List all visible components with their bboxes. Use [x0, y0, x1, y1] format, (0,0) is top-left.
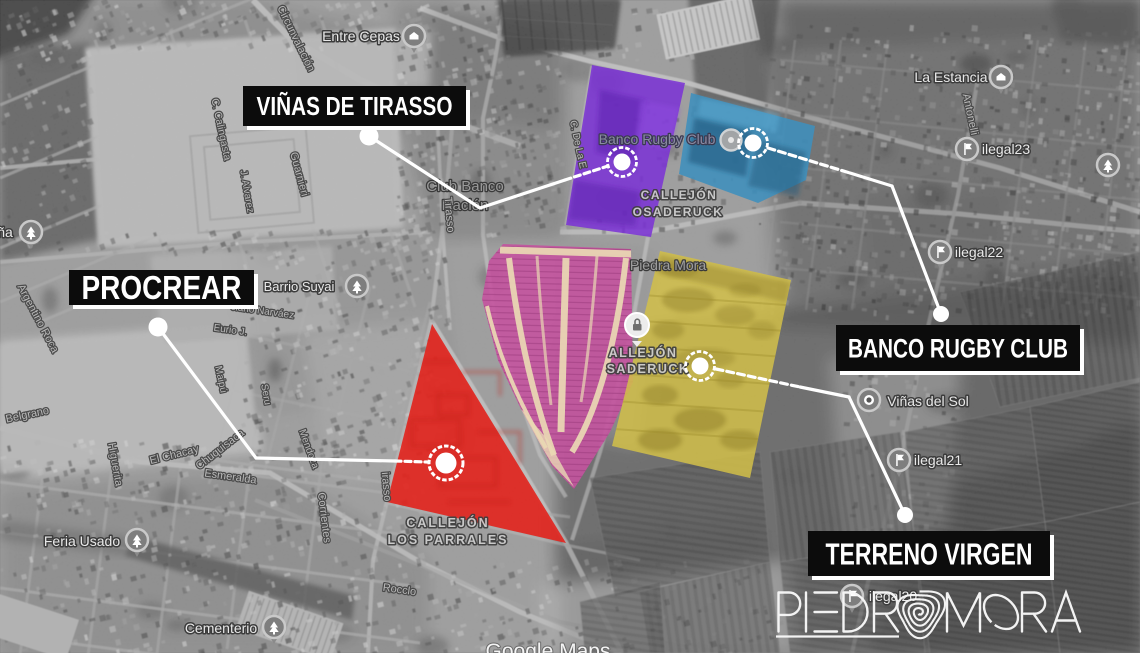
svg-text:OSADERUCK: OSADERUCK: [633, 205, 724, 219]
svg-text:PROCREAR: PROCREAR: [82, 269, 242, 306]
svg-text:CALLEJÓN: CALLEJÓN: [406, 515, 489, 530]
svg-text:ña: ña: [0, 224, 13, 240]
svg-text:ALLEJÓN: ALLEJÓN: [609, 345, 678, 360]
svg-text:BANCO RUGBY CLUB: BANCO RUGBY CLUB: [848, 334, 1068, 364]
svg-text:La Estancia: La Estancia: [914, 69, 987, 85]
svg-text:CALLEJÓN: CALLEJÓN: [641, 187, 718, 202]
svg-text:Entre Cepas: Entre Cepas: [322, 28, 400, 44]
svg-text:ilegal22: ilegal22: [955, 244, 1003, 260]
svg-text:TERRENO VIRGEN: TERRENO VIRGEN: [826, 537, 1033, 572]
svg-text:Feria Usado: Feria Usado: [44, 533, 120, 549]
svg-text:Cementerio: Cementerio: [185, 620, 258, 636]
svg-text:ilegal21: ilegal21: [914, 452, 962, 468]
svg-text:VIÑAS DE TIRASSO: VIÑAS DE TIRASSO: [257, 91, 453, 121]
svg-text:LOS PARRALES: LOS PARRALES: [388, 533, 509, 547]
svg-text:Banco Rugby Club: Banco Rugby Club: [599, 131, 716, 147]
svg-text:Barrio Suyai: Barrio Suyai: [264, 279, 335, 294]
svg-text:ilegal23: ilegal23: [982, 141, 1030, 157]
svg-text:irasso: irasso: [379, 472, 394, 502]
svg-text:Piedra Mora: Piedra Mora: [630, 257, 706, 273]
svg-text:Viñas del Sol: Viñas del Sol: [887, 393, 968, 409]
svg-text:Google Maps: Google Maps: [486, 640, 611, 653]
svg-text:SADERUCK: SADERUCK: [607, 362, 690, 376]
